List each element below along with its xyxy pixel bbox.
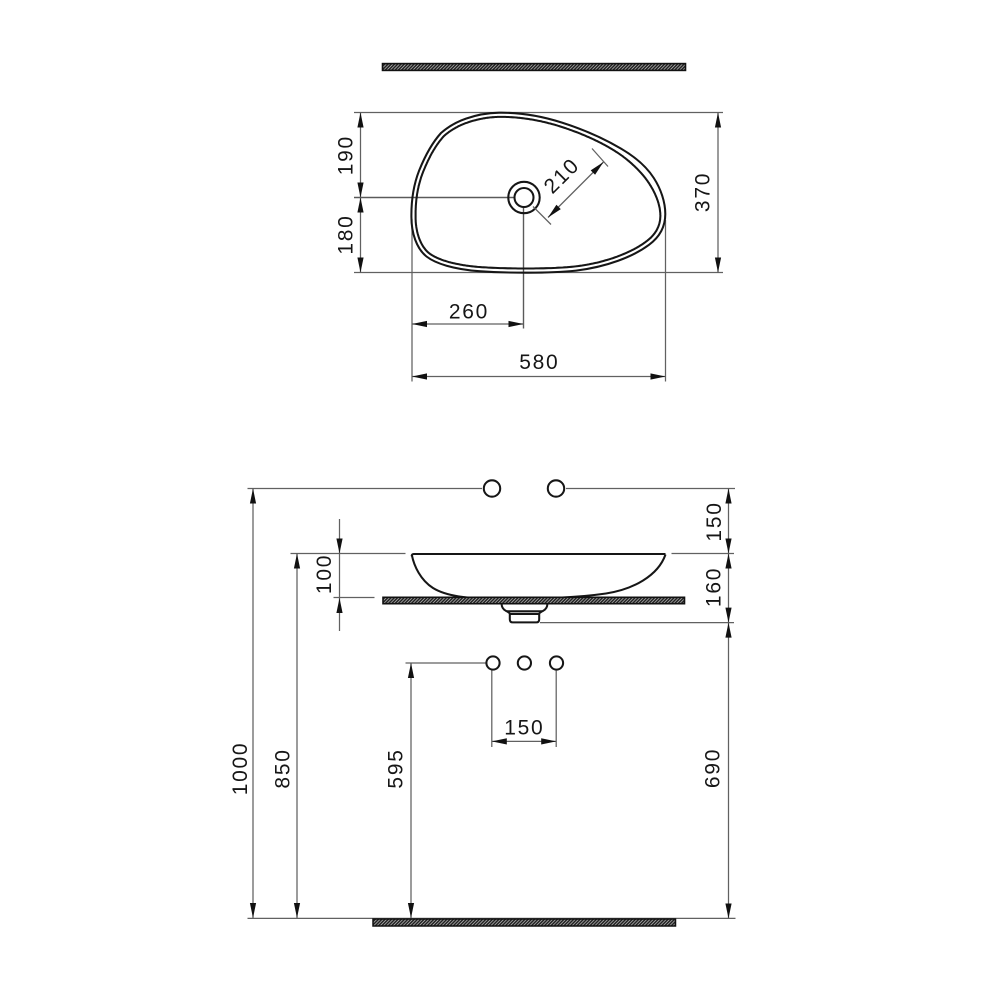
- svg-text:595: 595: [385, 748, 408, 788]
- svg-text:850: 850: [272, 748, 295, 788]
- svg-text:580: 580: [519, 351, 559, 374]
- svg-text:690: 690: [702, 748, 725, 788]
- svg-text:260: 260: [449, 301, 489, 324]
- svg-text:160: 160: [703, 567, 726, 607]
- svg-text:370: 370: [692, 172, 715, 212]
- svg-text:1000: 1000: [229, 742, 252, 796]
- svg-text:150: 150: [504, 717, 544, 740]
- svg-text:150: 150: [703, 501, 726, 541]
- svg-text:100: 100: [313, 554, 336, 594]
- svg-text:190: 190: [335, 135, 358, 175]
- svg-text:180: 180: [335, 215, 358, 255]
